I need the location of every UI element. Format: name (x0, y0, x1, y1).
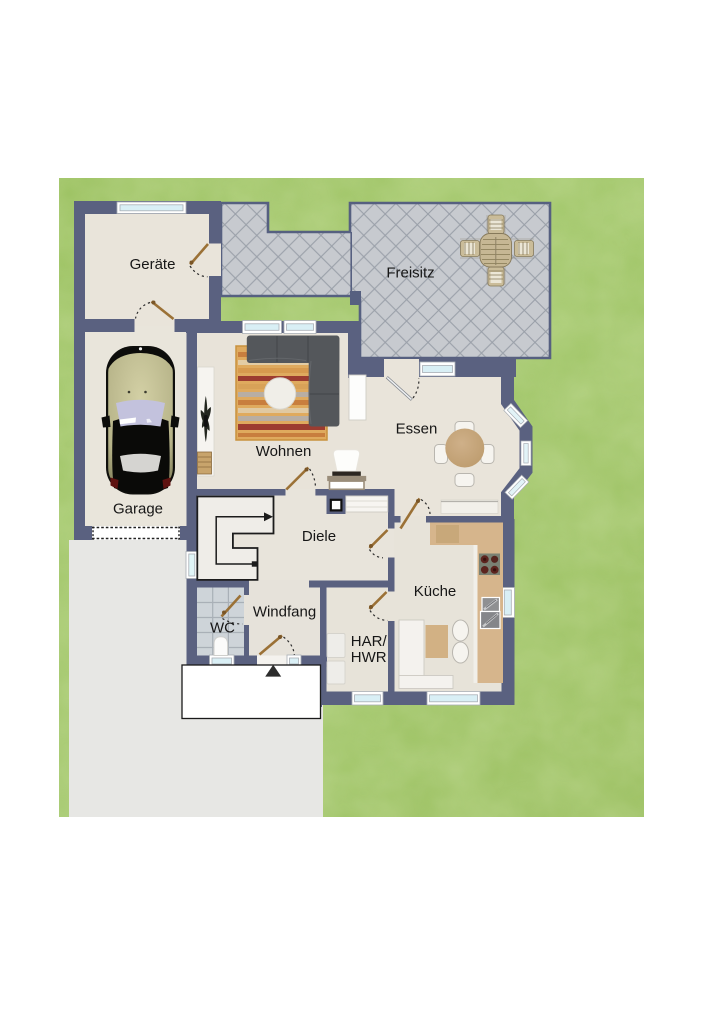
svg-text:Garage: Garage (113, 501, 163, 518)
svg-text:Wohnen: Wohnen (256, 443, 312, 460)
svg-text:WC: WC (210, 620, 235, 637)
svg-text:HAR/: HAR/ (351, 633, 388, 650)
svg-text:Küche: Küche (414, 583, 457, 600)
svg-text:Diele: Diele (302, 528, 336, 545)
svg-text:Windfang: Windfang (253, 604, 316, 621)
svg-text:Freisitz: Freisitz (386, 265, 434, 282)
svg-text:HWR: HWR (351, 649, 387, 666)
svg-text:Essen: Essen (396, 421, 438, 438)
svg-text:Geräte: Geräte (130, 256, 176, 273)
